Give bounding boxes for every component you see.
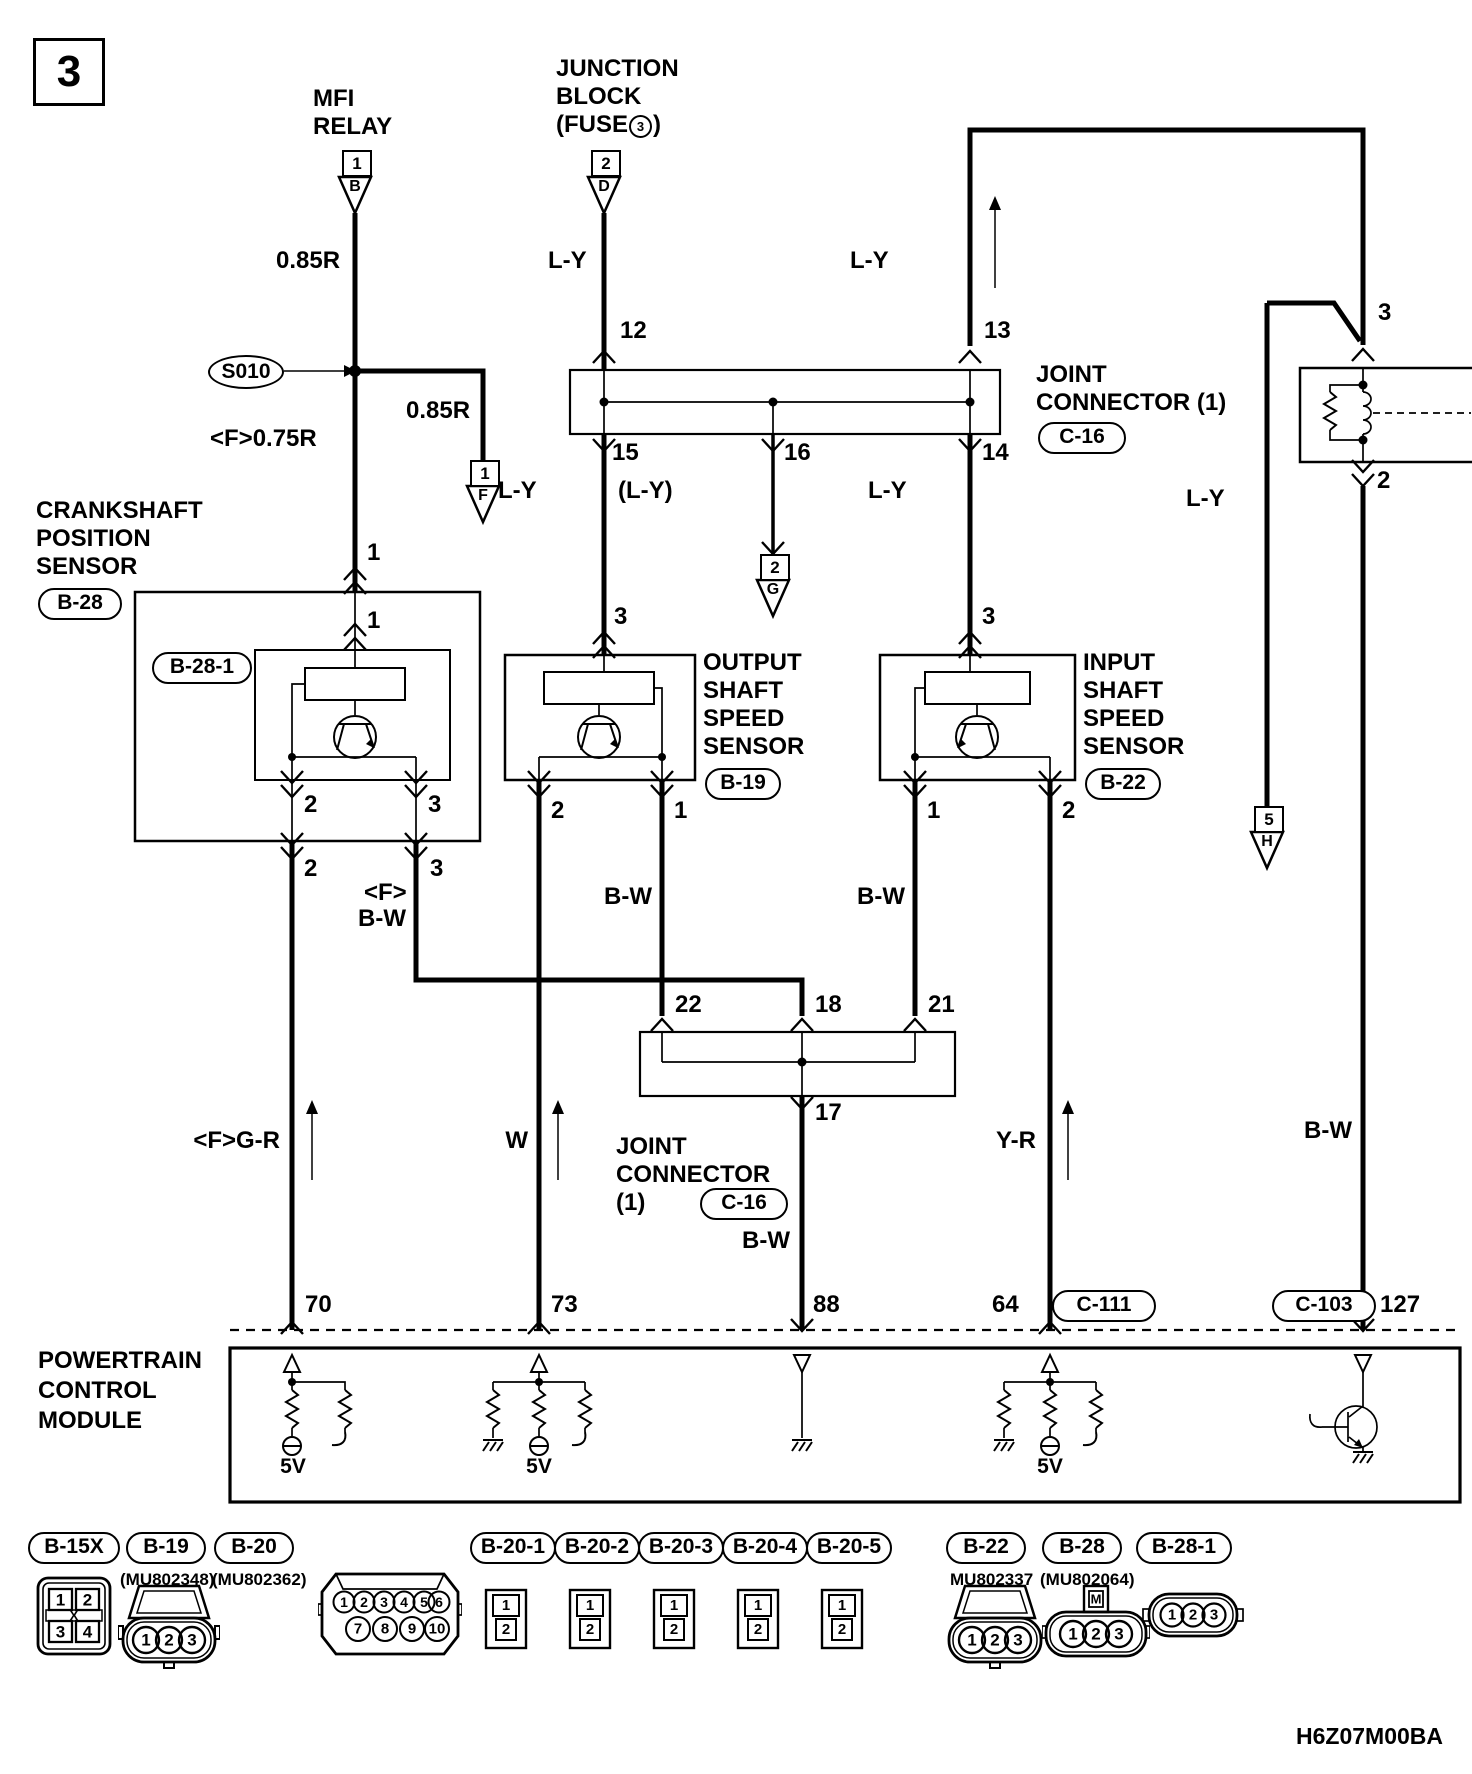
- pin-pcm-64: 64: [992, 1292, 1019, 1317]
- b15x-center-mark: X: [70, 1608, 79, 1623]
- b22-pin-2: 2: [990, 1631, 999, 1650]
- connector-face-b20-1: 1 2: [484, 1588, 528, 1655]
- jc1-title-2: CONNECTOR (1): [1036, 390, 1226, 415]
- connector-f-number: 1: [470, 460, 500, 487]
- pcm-title-2: CONTROL: [38, 1378, 157, 1403]
- wire-label-ly-16: (L-Y): [618, 478, 673, 503]
- b20-pin-9: 9: [408, 1621, 416, 1638]
- wire-label-input-bw: B-W: [845, 884, 905, 909]
- pin-output-3: 3: [614, 604, 627, 629]
- pcm-c111-capsule: C-111: [1052, 1290, 1156, 1322]
- b20-pin-2: 2: [360, 1594, 368, 1610]
- b20-pin-4: 4: [400, 1594, 408, 1610]
- thick-wires: [292, 130, 1363, 1330]
- pin-jc2-17: 17: [815, 1100, 842, 1125]
- output-title-1: OUTPUT: [703, 650, 802, 675]
- b20-5-pin-2: 2: [838, 1621, 846, 1638]
- wire-label-085r-branch: 0.85R: [406, 398, 470, 423]
- b20-pin-5: 5: [420, 1594, 428, 1610]
- pinout-ref-b19: B-19: [126, 1532, 206, 1564]
- output-ref-capsule: B-19: [705, 768, 781, 800]
- connector-face-b20-5: 1 2: [820, 1588, 864, 1655]
- wire-label-ly-15: L-Y: [498, 478, 537, 503]
- pinout-ref-b28: B-28: [1042, 1532, 1122, 1564]
- b20-5-pin-1: 1: [838, 1597, 846, 1614]
- b15x-pin-3: 3: [56, 1623, 65, 1642]
- pin-crank1-inner: 1: [367, 608, 380, 633]
- fuse-number-circle: 3: [629, 115, 652, 138]
- wire-label-output-bw: B-W: [592, 884, 652, 909]
- connector-h-number: 5: [1254, 806, 1284, 833]
- wire-label-crank-bw: B-W: [358, 906, 406, 931]
- b15x-pin-1: 1: [56, 1591, 65, 1610]
- input-title-2: SHAFT: [1083, 678, 1163, 703]
- b15x-pin-4: 4: [83, 1623, 93, 1642]
- jc2-title-3: (1): [616, 1190, 645, 1215]
- b28-pin-2: 2: [1091, 1625, 1100, 1644]
- connector-face-b20: 1 2 3 4 5 6 7 8 9 10: [318, 1572, 462, 1661]
- pin-jc2-18: 18: [815, 992, 842, 1017]
- junction-block-title-2: BLOCK: [556, 84, 641, 109]
- jc1-ref-capsule: C-16: [1038, 422, 1126, 454]
- pinout-ref-b20-4: B-20-4: [722, 1532, 808, 1564]
- wire-label-f075r: <F>0.75R: [210, 426, 317, 451]
- b20-2-pin-1: 1: [586, 1597, 594, 1614]
- pin-pcm-70: 70: [305, 1292, 332, 1317]
- output-title-3: SPEED: [703, 706, 784, 731]
- pin-relay-3: 3: [1378, 300, 1391, 325]
- b20-1-pin-1: 1: [502, 1597, 510, 1614]
- fuse-suffix: ): [653, 111, 661, 138]
- pin-input-3: 3: [982, 604, 995, 629]
- b19-pin-2: 2: [164, 1631, 173, 1650]
- pin-jc1-15: 15: [612, 440, 639, 465]
- connector-d-letter: D: [588, 178, 620, 196]
- crank-title-1: CRANKSHAFT: [36, 498, 203, 523]
- doc-code: H6Z07M00BA: [1296, 1724, 1443, 1748]
- pinout-ref-b20-3: B-20-3: [638, 1532, 724, 1564]
- output-title-4: SENSOR: [703, 734, 804, 759]
- connector-f-letter: F: [467, 487, 499, 505]
- pin-relay-2: 2: [1377, 468, 1390, 493]
- wire-label-yr: Y-R: [948, 1128, 1036, 1153]
- pin-crank2-outer: 2: [304, 856, 317, 881]
- pin-jc1-12: 12: [620, 318, 647, 343]
- wire-label-w: W: [470, 1128, 528, 1153]
- wire-label-085r-main: 0.85R: [276, 248, 340, 273]
- pcm-c103-capsule: C-103: [1272, 1290, 1376, 1322]
- splice-s010: S010: [208, 355, 284, 389]
- wire-label-bw-127: B-W: [1282, 1118, 1352, 1143]
- pin-jc1-13: 13: [984, 318, 1011, 343]
- pin-crank1-outer: 1: [367, 540, 380, 565]
- input-sensor-internals: [911, 655, 1050, 780]
- crank-sub-ref-capsule: B-28-1: [152, 652, 252, 684]
- b20-3-pin-2: 2: [670, 1621, 678, 1638]
- b15x-pin-2: 2: [83, 1591, 92, 1610]
- connector-b-number: 1: [342, 150, 372, 177]
- b19-pin-3: 3: [187, 1631, 196, 1650]
- pinout-ref-b20-2: B-20-2: [554, 1532, 640, 1564]
- input-ref-capsule: B-22: [1085, 768, 1161, 800]
- pin-output-1: 1: [674, 798, 687, 823]
- mfi-relay-title-2: RELAY: [313, 114, 392, 139]
- b20-1-pin-2: 2: [502, 1621, 510, 1638]
- connector-face-b28: M 1 2 3: [1042, 1584, 1150, 1667]
- input-title-1: INPUT: [1083, 650, 1155, 675]
- jc2-title-1: JOINT: [616, 1134, 687, 1159]
- jc2-ref-capsule: C-16: [700, 1188, 788, 1220]
- crank-ref-capsule: B-28: [38, 588, 122, 620]
- b20-3-pin-1: 1: [670, 1597, 678, 1614]
- fuse-prefix: (FUSE: [556, 111, 628, 138]
- wire-label-ly-14: L-Y: [868, 478, 907, 503]
- b28-tab-m: M: [1091, 1592, 1102, 1607]
- b20-pin-8: 8: [381, 1621, 389, 1638]
- wiring-diagram-page: 3 MFI RELAY JUNCTION BLOCK (FUSE3) 1 B 2…: [0, 0, 1472, 1774]
- connector-face-b20-3: 1 2: [652, 1588, 696, 1655]
- output-title-2: SHAFT: [703, 678, 783, 703]
- pinout-ref-b20: B-20: [214, 1532, 294, 1564]
- wire-label-ly-jb: L-Y: [548, 248, 587, 273]
- b20-pin-3: 3: [380, 1594, 388, 1610]
- wiring-schematic-svg: [0, 0, 1472, 1774]
- pin-crank2-inner: 2: [304, 792, 317, 817]
- pin-jc2-21: 21: [928, 992, 955, 1017]
- b28-1-pin-1: 1: [1168, 1607, 1176, 1624]
- wire-label-ly-13: L-Y: [850, 248, 889, 273]
- pcm-title-1: POWERTRAIN: [38, 1348, 202, 1373]
- pinout-ref-b28-1: B-28-1: [1136, 1532, 1232, 1564]
- b28-1-pin-3: 3: [1210, 1607, 1218, 1624]
- output-sensor-internals: [539, 655, 666, 780]
- crank-title-2: POSITION: [36, 526, 151, 551]
- junction-block-fuse-line: (FUSE3): [556, 112, 661, 138]
- b28-pin-1: 1: [1068, 1625, 1077, 1644]
- b28-1-pin-2: 2: [1189, 1607, 1197, 1624]
- pinout-ref-b20-1: B-20-1: [470, 1532, 556, 1564]
- connector-d-number: 2: [591, 150, 621, 177]
- b20-4-pin-1: 1: [754, 1597, 762, 1614]
- jc1-title-1: JOINT: [1036, 362, 1107, 387]
- b19-pin-1: 1: [141, 1631, 150, 1650]
- b22-pin-3: 3: [1013, 1631, 1022, 1650]
- pin-jc1-14: 14: [982, 440, 1009, 465]
- connector-b-letter: B: [339, 178, 371, 196]
- b28-pin-3: 3: [1114, 1625, 1123, 1644]
- sheet-number-box: 3: [33, 38, 105, 106]
- b20-pin-7: 7: [354, 1621, 362, 1638]
- pinout-ref-b20-5: B-20-5: [806, 1532, 892, 1564]
- pcm-internals: [283, 1355, 1377, 1463]
- pin-input-1: 1: [927, 798, 940, 823]
- wire-label-fgr: <F>G-R: [158, 1128, 280, 1153]
- connector-face-b22: 1 2 3: [944, 1582, 1046, 1677]
- b20-pin-10: 10: [429, 1621, 446, 1638]
- connector-h-letter: H: [1251, 833, 1283, 851]
- pcm-5v-label-2: 5V: [514, 1456, 564, 1478]
- pcm-5v-label-3: 5V: [1025, 1456, 1075, 1478]
- pin-output-2: 2: [551, 798, 564, 823]
- pin-crank3-inner: 3: [428, 792, 441, 817]
- connector-face-b28-1: 1 2 3: [1142, 1590, 1244, 1645]
- input-title-4: SENSOR: [1083, 734, 1184, 759]
- pin-jc1-16: 16: [784, 440, 811, 465]
- jc2-title-2: CONNECTOR: [616, 1162, 770, 1187]
- wire-label-bw-88: B-W: [724, 1228, 790, 1253]
- crank-title-3: SENSOR: [36, 554, 137, 579]
- part-number-b20: (MU802362): [212, 1570, 307, 1590]
- wire-label-ly-h: L-Y: [1186, 486, 1225, 511]
- pin-input-2: 2: [1062, 798, 1075, 823]
- b22-pin-1: 1: [967, 1631, 976, 1650]
- connector-face-b19: 1 2 3: [118, 1582, 220, 1677]
- b20-pin-6: 6: [435, 1594, 443, 1610]
- wire-label-crank-f: <F>: [364, 880, 407, 905]
- pin-pcm-88: 88: [813, 1292, 840, 1317]
- pin-crank3-outer: 3: [430, 856, 443, 881]
- b20-pin-1: 1: [340, 1594, 348, 1610]
- pcm-title-3: MODULE: [38, 1408, 142, 1433]
- pcm-5v-label-1: 5V: [268, 1456, 318, 1478]
- relay-coil-internals: [1324, 368, 1471, 462]
- connector-face-b15x: 1 2 3 4 X: [36, 1576, 112, 1661]
- connector-g-letter: G: [757, 581, 789, 599]
- b20-4-pin-2: 2: [754, 1621, 762, 1638]
- connector-face-b20-4: 1 2: [736, 1588, 780, 1655]
- component-boxes: [135, 368, 1472, 1502]
- pinout-ref-b22: B-22: [946, 1532, 1026, 1564]
- connector-g-number: 2: [760, 554, 790, 581]
- input-title-3: SPEED: [1083, 706, 1164, 731]
- mfi-relay-title-1: MFI: [313, 86, 354, 111]
- pin-jc2-22: 22: [675, 992, 702, 1017]
- pin-pcm-127: 127: [1380, 1292, 1420, 1317]
- connector-face-b20-2: 1 2: [568, 1588, 612, 1655]
- b20-2-pin-2: 2: [586, 1621, 594, 1638]
- pinout-ref-b15x: B-15X: [28, 1532, 120, 1564]
- sheet-number: 3: [57, 47, 81, 96]
- pin-pcm-73: 73: [551, 1292, 578, 1317]
- junction-block-title-1: JUNCTION: [556, 56, 679, 81]
